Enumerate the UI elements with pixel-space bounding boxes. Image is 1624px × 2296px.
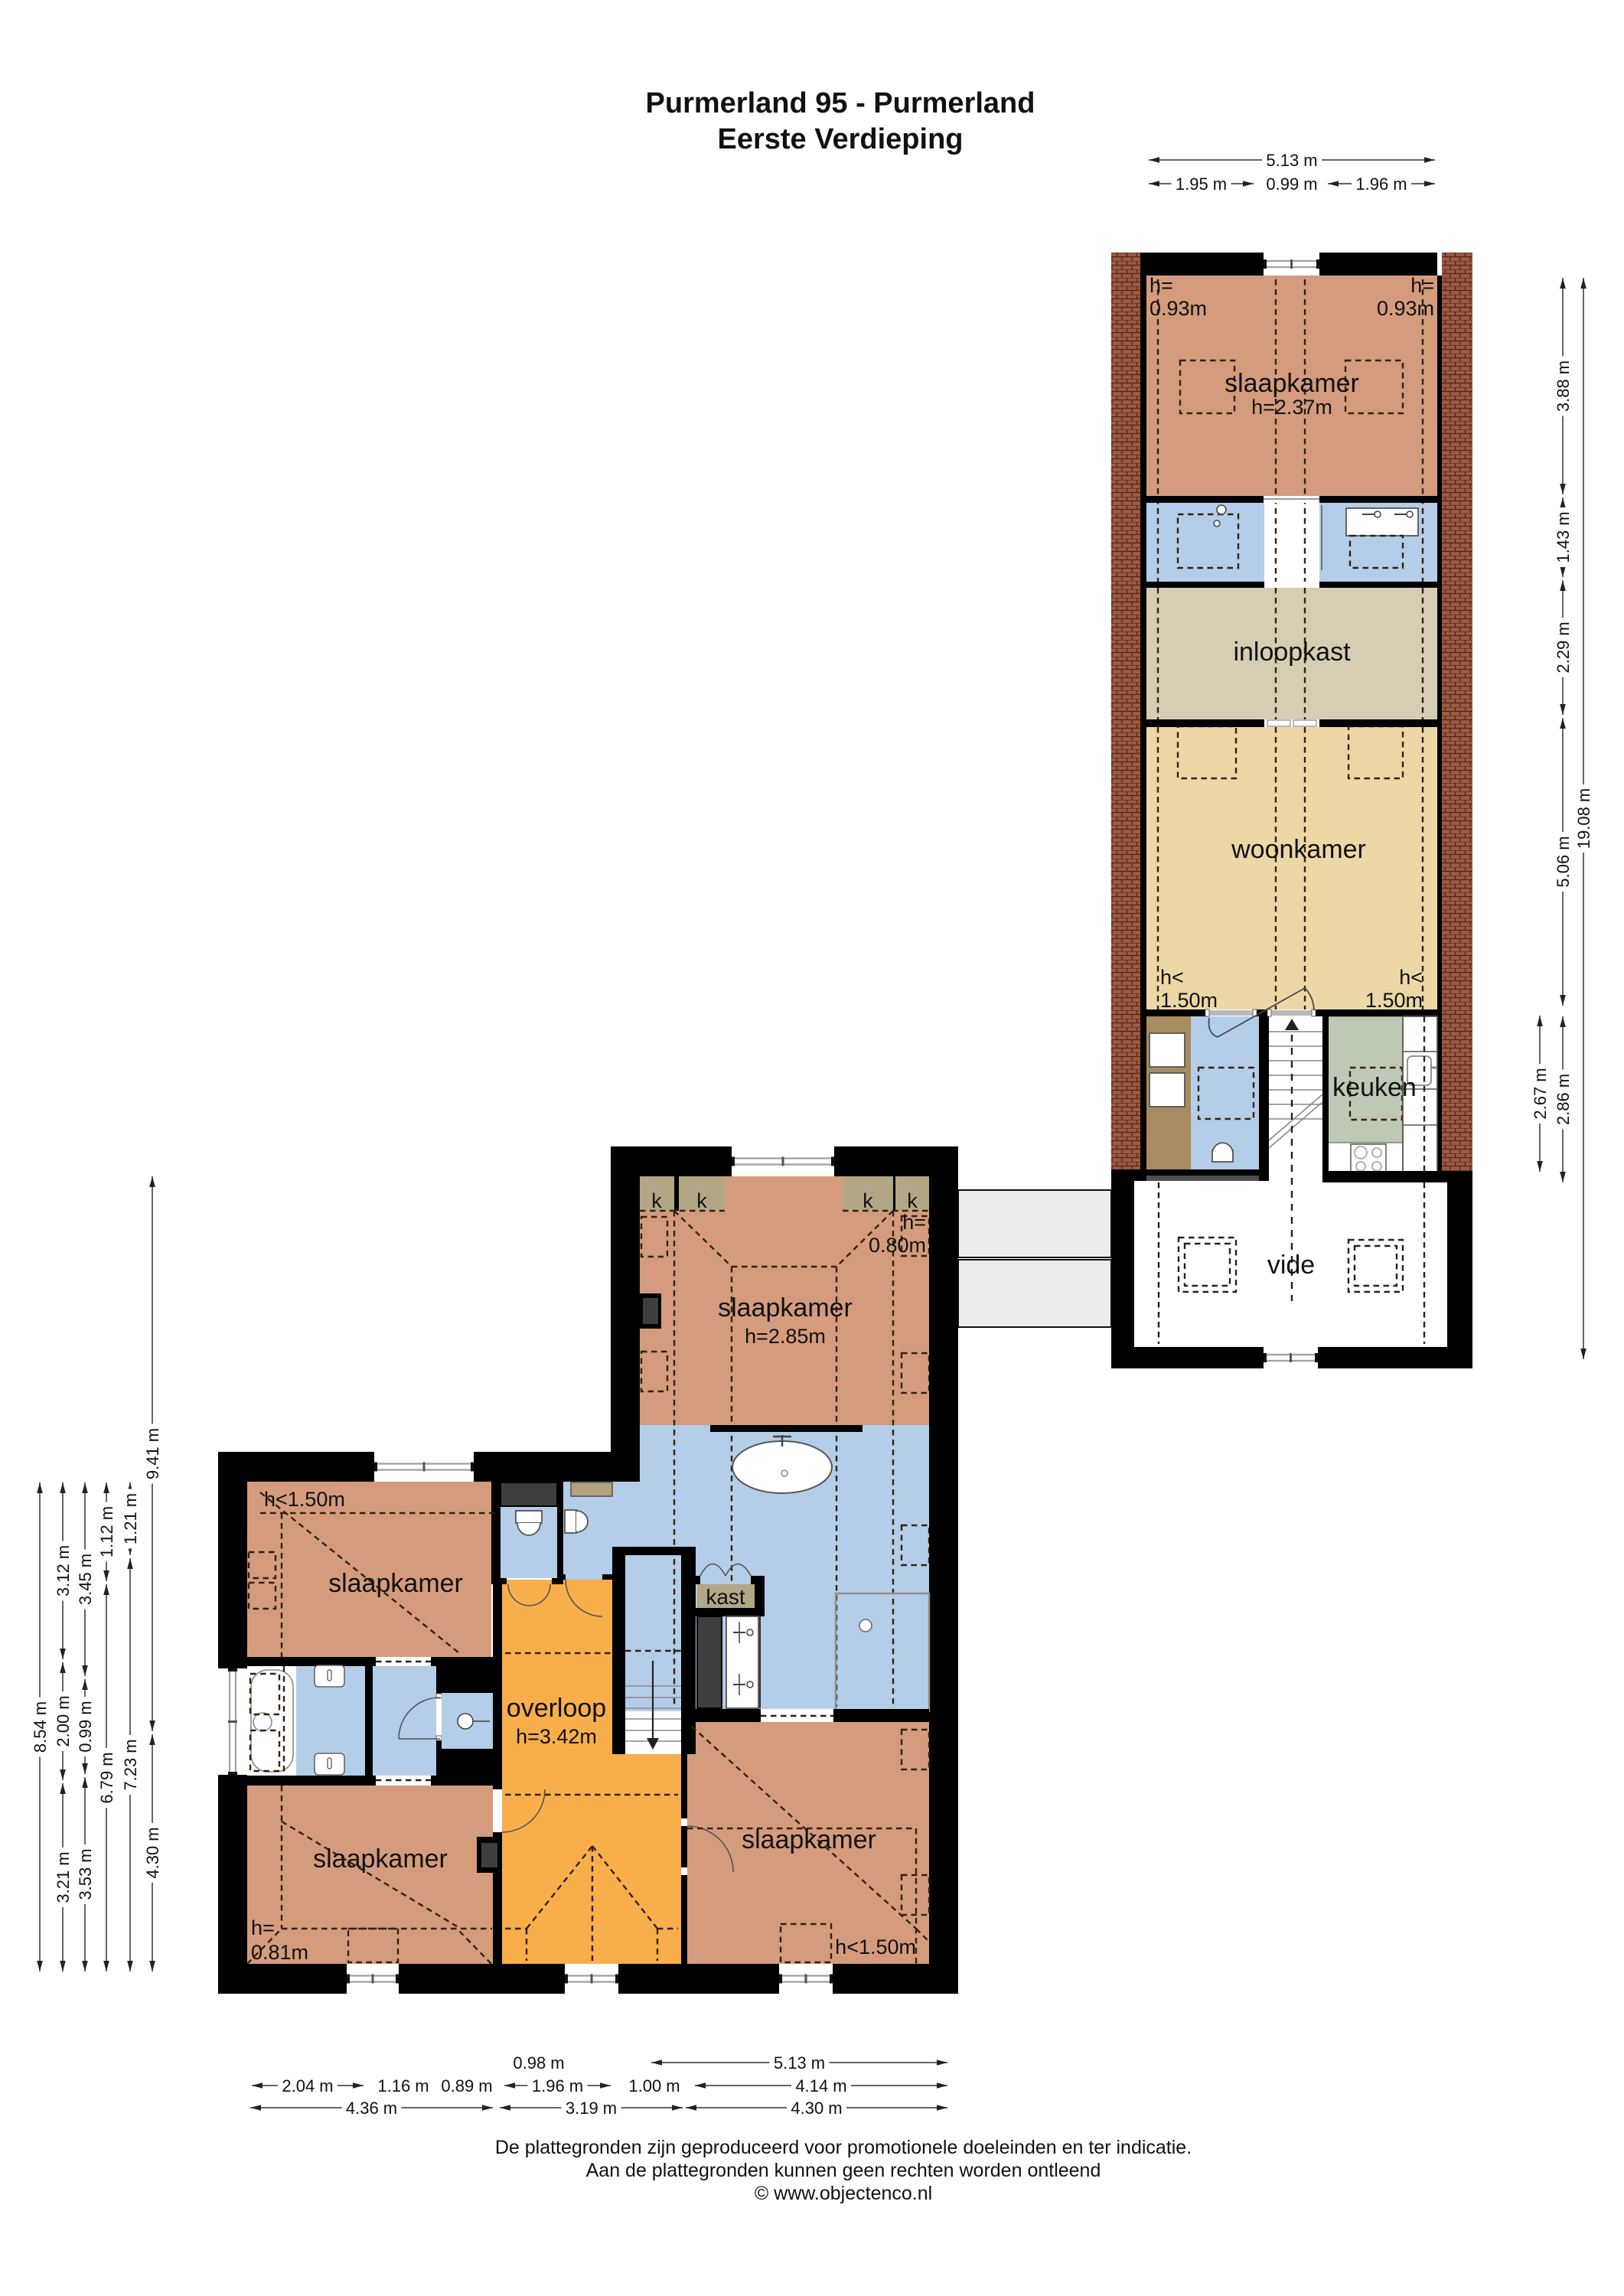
svg-text:4.36 m: 4.36 m xyxy=(346,2099,397,2118)
svg-text:De plattegronden zijn geproduc: De plattegronden zijn geproduceerd voor … xyxy=(495,2137,1192,2158)
svg-text:0.98 m: 0.98 m xyxy=(513,2053,564,2073)
svg-text:1.00 m: 1.00 m xyxy=(628,2076,680,2095)
svg-text:3.12 m: 3.12 m xyxy=(54,1545,73,1596)
svg-text:keuken: keuken xyxy=(1332,1073,1417,1102)
svg-text:4.30 m: 4.30 m xyxy=(143,1827,162,1878)
svg-text:4.14 m: 4.14 m xyxy=(795,2076,846,2095)
svg-text:1.95 m: 1.95 m xyxy=(1176,174,1227,194)
svg-text:0.81m: 0.81m xyxy=(251,1941,308,1964)
svg-text:0.99 m: 0.99 m xyxy=(1266,174,1317,194)
svg-text:3.88 m: 3.88 m xyxy=(1554,360,1573,412)
svg-text:6.79 m: 6.79 m xyxy=(97,1752,116,1803)
svg-text:h<: h< xyxy=(1399,966,1423,989)
svg-text:3.53 m: 3.53 m xyxy=(76,1848,95,1900)
svg-text:0.99 m: 0.99 m xyxy=(76,1701,95,1752)
svg-text:woonkamer: woonkamer xyxy=(1231,835,1366,864)
svg-text:h=: h= xyxy=(1410,274,1434,297)
svg-text:h=: h= xyxy=(902,1211,926,1234)
svg-text:5.06 m: 5.06 m xyxy=(1554,836,1573,887)
svg-text:8.54 m: 8.54 m xyxy=(31,1701,50,1753)
svg-text:2.00 m: 2.00 m xyxy=(54,1695,73,1746)
svg-text:overloop: overloop xyxy=(507,1694,606,1723)
svg-text:2.86 m: 2.86 m xyxy=(1554,1074,1573,1125)
svg-text:2.29 m: 2.29 m xyxy=(1554,621,1573,673)
svg-text:k: k xyxy=(907,1189,918,1212)
svg-text:© www.objectenco.nl: © www.objectenco.nl xyxy=(755,2183,932,2204)
svg-text:0.89 m: 0.89 m xyxy=(441,2076,492,2095)
svg-text:5.13 m: 5.13 m xyxy=(1266,151,1317,170)
svg-text:h<1.50m: h<1.50m xyxy=(264,1488,345,1511)
svg-text:Aan de plattegronden kunnen ge: Aan de plattegronden kunnen geen rechten… xyxy=(586,2160,1101,2181)
svg-text:h=2.85m: h=2.85m xyxy=(745,1325,826,1348)
svg-text:2.67 m: 2.67 m xyxy=(1531,1068,1550,1119)
svg-text:0.93m: 0.93m xyxy=(1377,297,1434,320)
svg-text:3.19 m: 3.19 m xyxy=(566,2099,617,2118)
svg-text:0.93m: 0.93m xyxy=(1150,297,1207,320)
svg-text:3.21 m: 3.21 m xyxy=(54,1851,73,1903)
svg-text:Eerste Verdieping: Eerste Verdieping xyxy=(717,123,963,155)
svg-text:inloopkast: inloopkast xyxy=(1233,638,1351,667)
svg-text:7.23 m: 7.23 m xyxy=(121,1739,140,1790)
svg-text:4.30 m: 4.30 m xyxy=(791,2099,842,2118)
svg-text:k: k xyxy=(651,1189,662,1212)
svg-text:5.13 m: 5.13 m xyxy=(774,2053,825,2073)
svg-text:slaapkamer: slaapkamer xyxy=(742,1825,876,1854)
svg-text:h=: h= xyxy=(251,1916,275,1939)
svg-text:19.08 m: 19.08 m xyxy=(1574,788,1593,850)
svg-text:slaapkamer: slaapkamer xyxy=(1225,369,1359,398)
svg-text:2.04 m: 2.04 m xyxy=(282,2076,333,2095)
svg-text:k: k xyxy=(863,1189,873,1212)
svg-text:3.45 m: 3.45 m xyxy=(76,1554,95,1605)
svg-text:h<1.50m: h<1.50m xyxy=(835,1936,916,1958)
svg-text:h=3.42m: h=3.42m xyxy=(516,1725,597,1748)
svg-text:1.50m: 1.50m xyxy=(1160,989,1218,1012)
svg-text:0.80m: 0.80m xyxy=(869,1234,926,1257)
svg-text:1.21 m: 1.21 m xyxy=(121,1493,140,1544)
svg-text:k: k xyxy=(696,1189,707,1212)
svg-text:kast: kast xyxy=(706,1585,745,1609)
svg-text:vide: vide xyxy=(1267,1251,1315,1280)
svg-text:h=: h= xyxy=(1150,274,1173,297)
svg-text:slaapkamer: slaapkamer xyxy=(313,1844,448,1874)
svg-text:1.43 m: 1.43 m xyxy=(1554,511,1573,563)
svg-text:h<: h< xyxy=(1160,966,1184,989)
svg-text:slaapkamer: slaapkamer xyxy=(328,1569,463,1598)
svg-text:9.41 m: 9.41 m xyxy=(143,1428,162,1479)
svg-text:slaapkamer: slaapkamer xyxy=(718,1293,853,1322)
svg-text:1.96 m: 1.96 m xyxy=(1355,174,1407,194)
svg-text:1.50m: 1.50m xyxy=(1365,989,1423,1012)
svg-text:1.96 m: 1.96 m xyxy=(532,2076,583,2095)
svg-text:1.12 m: 1.12 m xyxy=(97,1506,116,1557)
svg-text:h=2.37m: h=2.37m xyxy=(1251,396,1332,419)
svg-text:Purmerland 95 - Purmerland: Purmerland 95 - Purmerland xyxy=(646,87,1035,119)
svg-text:1.16 m: 1.16 m xyxy=(377,2076,429,2095)
